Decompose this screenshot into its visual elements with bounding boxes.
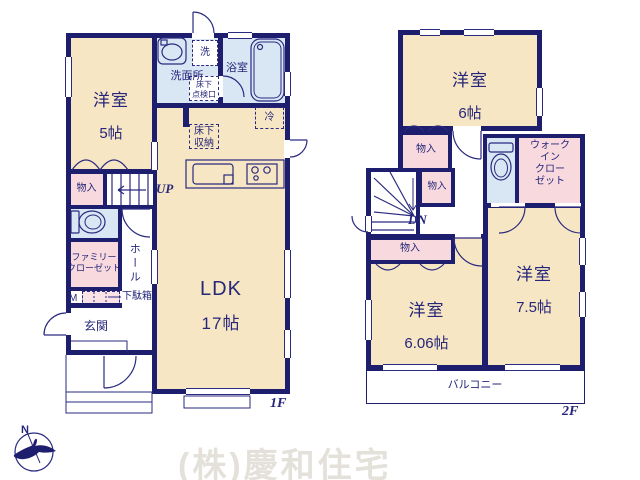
- window: [365, 216, 372, 232]
- window: [284, 330, 291, 358]
- room-label-monoiri-c: 物入: [380, 243, 440, 255]
- door-opening: [555, 203, 581, 207]
- room-toilet-2f: [483, 134, 519, 207]
- window: [228, 32, 252, 39]
- door-arc: [44, 313, 66, 335]
- door-opening: [453, 126, 481, 131]
- room-label-monoiri-b: 物入: [422, 181, 452, 192]
- compass-n-label: N: [21, 424, 29, 437]
- room-label-yoshitsu6: 洋室 6帖: [435, 58, 505, 123]
- terrace-step: [184, 396, 250, 408]
- door-opening: [284, 140, 291, 158]
- label-dn: DN: [408, 212, 427, 228]
- door-opening: [499, 203, 525, 207]
- meter-box: [82, 291, 120, 307]
- label-meter: M: [69, 293, 77, 305]
- door-opening: [455, 234, 481, 238]
- label-balcony: バルコニー: [420, 379, 530, 392]
- sliding-door: [151, 250, 158, 284]
- room-label-family-closet: ファミリー クローゼット: [64, 252, 124, 274]
- window: [420, 29, 440, 36]
- label-getabako: 下駄箱: [122, 291, 152, 303]
- room-label-yoshitsu5: 洋室 5帖: [76, 78, 146, 143]
- floor-label-1f: 1F: [270, 396, 286, 413]
- room-name: LDK: [200, 278, 242, 300]
- stairs-1f: [103, 170, 157, 209]
- company-watermark: (株)慶和住宅: [178, 438, 392, 480]
- room-label-genkan: 玄関: [76, 319, 116, 333]
- room-toilet-1f: [66, 205, 122, 242]
- door-opening: [192, 32, 214, 39]
- window: [186, 388, 250, 395]
- compass-circle-icon: [15, 433, 53, 471]
- room-label-yoshitsu606: 洋室 6.06帖: [378, 288, 475, 353]
- floor-plan: 洋室 5帖 洗面所 洗 浴室 床下 点検口 床下 収納 冷 物入 UP ファミリ…: [0, 0, 640, 480]
- floor-label-2f: 2F: [562, 404, 578, 421]
- room-ldk: [152, 103, 290, 394]
- window: [65, 57, 72, 97]
- window: [284, 72, 291, 96]
- door-opening: [65, 313, 72, 335]
- door-arc: [453, 131, 481, 159]
- room-label-yokushitsu: 浴室: [222, 62, 252, 75]
- label-floor-storage: 床下 収納: [189, 126, 219, 150]
- label-floor-hatch: 床下 点検口: [189, 80, 219, 100]
- room-name: 洋室: [409, 301, 445, 320]
- label-up: UP: [156, 181, 173, 197]
- window: [579, 292, 586, 317]
- room-size: 7.5帖: [516, 299, 552, 316]
- window: [579, 238, 586, 265]
- room-label-ldk: LDK 17帖: [181, 264, 261, 335]
- room-name: 洋室: [516, 265, 552, 284]
- door-arc: [193, 12, 214, 33]
- room-label-wic: ウォーク イン クロー ゼット: [519, 140, 581, 188]
- window: [536, 88, 543, 116]
- porch-steps: [66, 392, 152, 413]
- room-label-yoshitsu75: 洋室 7.5帖: [494, 252, 574, 317]
- room-name: 洋室: [452, 71, 488, 90]
- window: [383, 364, 437, 371]
- room-label-monoiri-1f: 物入: [70, 183, 103, 195]
- room-size: 6帖: [458, 105, 481, 122]
- room-label-monoiri-a: 物入: [406, 144, 446, 156]
- sliding-door: [151, 142, 158, 170]
- window: [464, 29, 494, 36]
- room-label-hall: ホール: [127, 243, 140, 285]
- window: [284, 250, 291, 298]
- window: [505, 364, 560, 371]
- door-arc: [290, 140, 307, 157]
- room-size: 6.06帖: [404, 335, 448, 352]
- label-washer: 洗: [192, 47, 218, 59]
- entrance-door-arc: [104, 356, 136, 388]
- room-size: 5帖: [99, 125, 122, 142]
- room-size: 17帖: [202, 314, 241, 333]
- room-name: 洋室: [93, 91, 129, 110]
- bird-logo-icon: [14, 439, 56, 459]
- window: [365, 300, 372, 340]
- label-fridge: 冷: [255, 112, 284, 124]
